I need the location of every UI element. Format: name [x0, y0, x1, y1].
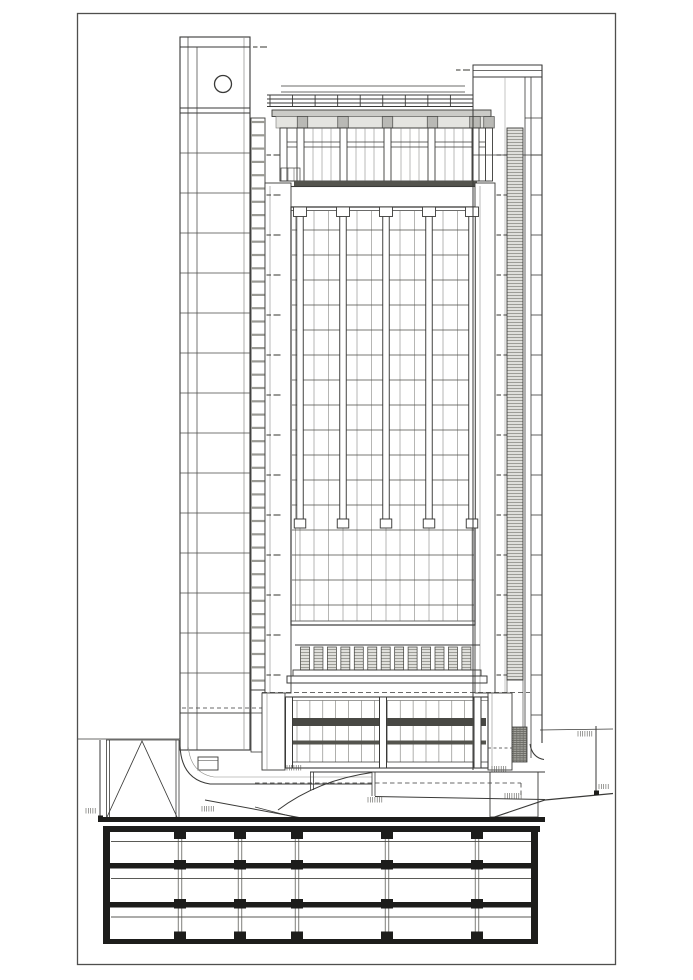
elevation-linework	[78, 14, 616, 965]
left-side-strip	[265, 183, 291, 693]
building-elevation-drawing	[0, 0, 693, 980]
right-side-strip	[475, 183, 495, 693]
drawing-sheet	[0, 0, 693, 980]
